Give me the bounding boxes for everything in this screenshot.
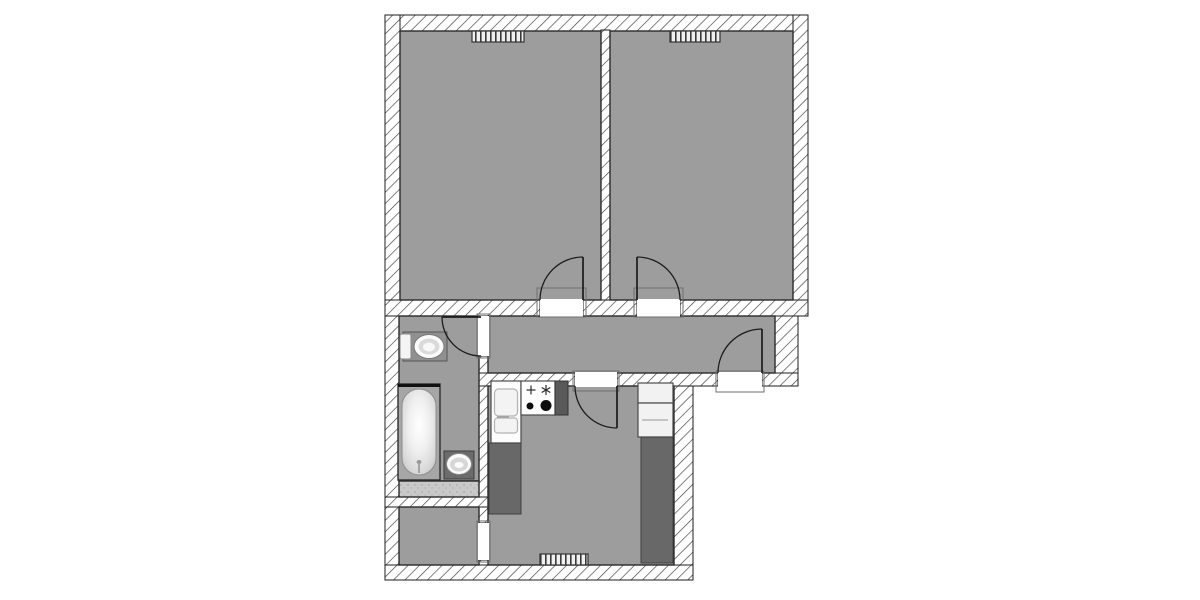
bedroom-right-door-opening — [637, 299, 680, 317]
floor-plan-canvas — [0, 0, 1200, 600]
stove — [521, 381, 555, 415]
stove-side-cabinet — [555, 381, 568, 415]
kitchen-sink-unit-part-1 — [495, 389, 518, 416]
bedroom-left-door-opening — [540, 299, 583, 317]
bathtub-part-3 — [417, 460, 422, 464]
corridor-floor — [488, 316, 775, 373]
kitchen-door-opening — [575, 372, 617, 387]
storage-opening — [478, 523, 489, 560]
stove-part-6 — [527, 403, 534, 410]
kitchen-sink-unit — [491, 381, 521, 443]
wall-top — [385, 15, 808, 31]
kitchen-wall-cabinet-lower — [638, 403, 673, 437]
stove-part-7 — [541, 400, 552, 411]
kitchen-counter-right-part-0 — [641, 437, 673, 563]
stove-part-0 — [521, 381, 555, 415]
wc-door-opening — [478, 316, 489, 356]
bathroom-sink-part-3 — [455, 462, 464, 468]
kitchen-counter-left — [489, 443, 521, 514]
wall-left-upper — [385, 15, 400, 316]
entry-door-opening — [718, 372, 762, 387]
floors-layer — [399, 31, 793, 565]
bedroom-left-floor — [400, 31, 601, 300]
wall-kitchen-right — [674, 386, 693, 580]
wall-bottom — [385, 565, 693, 580]
kitchen-sink-unit-part-2 — [495, 418, 518, 433]
bathtub — [398, 384, 440, 480]
kitchen-counter-left-part-0 — [489, 443, 521, 514]
wall-corridor-right — [775, 316, 798, 373]
wall-bedroom-partition — [601, 30, 610, 301]
kitchen-wall-cabinet-upper — [638, 383, 673, 403]
wall-left-lower — [385, 316, 399, 580]
stove-side-cabinet-part-0 — [555, 381, 568, 415]
toilet — [400, 332, 447, 361]
wall-rooms-bottom-left — [385, 300, 540, 316]
wall-corridor-bottom-right — [762, 373, 798, 386]
wall-right-upper — [793, 15, 808, 316]
toilet-part-1 — [400, 334, 411, 359]
bathroom-sink — [444, 451, 474, 479]
kitchen-radiator — [540, 554, 588, 565]
floor-plan-page — [0, 0, 1200, 600]
kitchen-wall-cabinet-upper-part-0 — [638, 383, 673, 403]
storage-floor — [399, 507, 479, 565]
kitchen-counter-right — [641, 437, 673, 563]
bedroom-right-radiator — [670, 31, 720, 42]
wall-bath-storage — [385, 497, 489, 507]
wall-rooms-bottom-mid — [583, 300, 637, 316]
bedroom-left-radiator — [472, 31, 524, 42]
toilet-part-4 — [423, 343, 435, 352]
bathroom-ledge — [399, 481, 479, 497]
wall-rooms-bottom-right — [680, 300, 808, 316]
